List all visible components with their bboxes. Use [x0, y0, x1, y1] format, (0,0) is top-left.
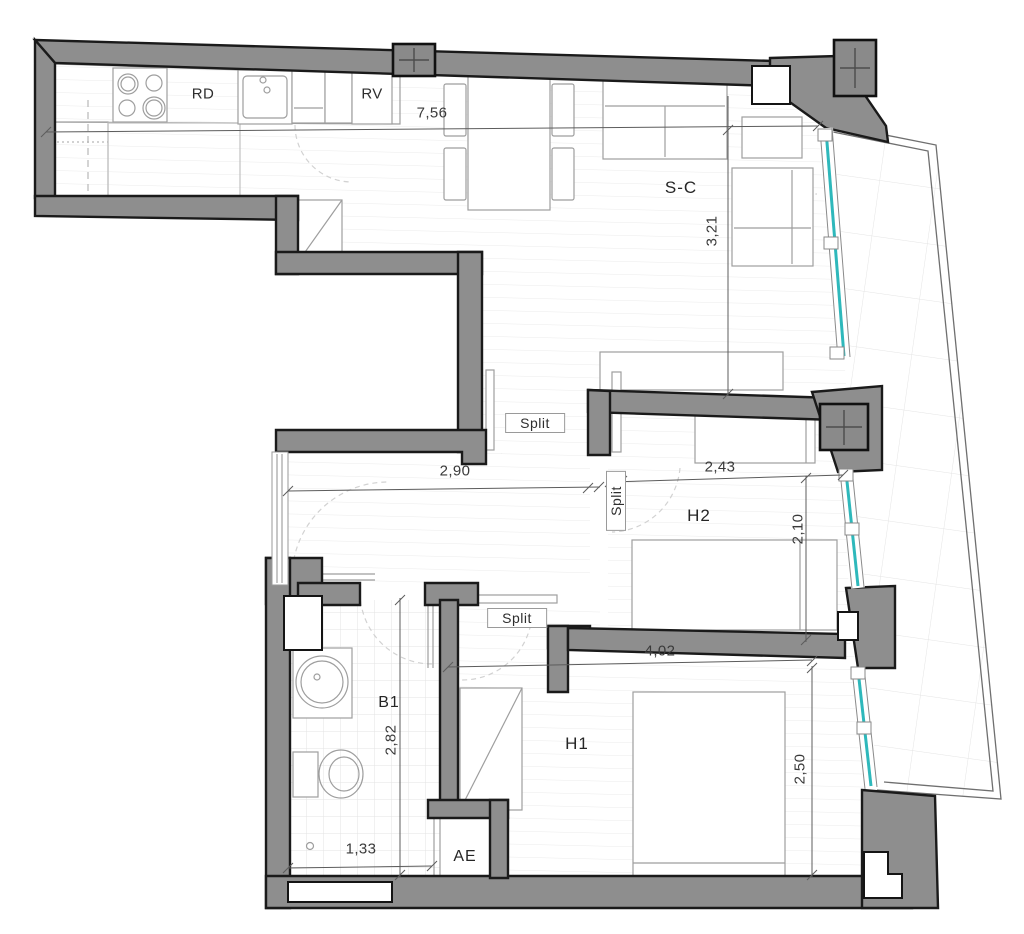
ac-unit-h1 [473, 595, 557, 603]
wall-kitchen-bottom [35, 196, 298, 220]
dishwasher [292, 66, 325, 123]
chair [444, 148, 466, 200]
room-label-storage: AE [453, 848, 476, 866]
dim-living-width: 7,56 [417, 105, 448, 122]
ac-label-hall: Split [505, 413, 565, 433]
dim-wardrobe-width: 2,43 [705, 459, 736, 476]
chair [552, 148, 574, 200]
room-label-living: S-C [665, 178, 697, 198]
room-label-bedroom1: H1 [565, 734, 589, 754]
kitchen-counter-label: RD [192, 86, 214, 103]
room-label-bathroom: B1 [378, 694, 400, 712]
left-niche [284, 596, 322, 650]
ac-label-bedroom1: Split [487, 608, 547, 628]
floor-plan: RD RV 7,56 S-C 3,21 Split Split 2,90 2,4… [0, 0, 1024, 934]
wall-left-kitchen [35, 40, 55, 198]
wall-patio-right [458, 252, 482, 452]
dim-bathroom-width: 1,33 [346, 841, 377, 858]
dim-bedroom2-depth: 2,10 [790, 514, 807, 545]
side-table [742, 117, 802, 158]
ac-label-bedroom2: Split [606, 471, 626, 531]
bottom-vent [288, 882, 392, 902]
fridge-label: RV [361, 86, 382, 103]
dim-bedroom1-width: 4,02 [645, 643, 676, 660]
hall-window [272, 452, 288, 585]
armchair [732, 168, 813, 266]
kitchen-unit [325, 65, 352, 123]
entry-niche [752, 66, 790, 104]
dim-bedroom1-depth: 2,50 [792, 754, 809, 785]
tv-bench [600, 352, 783, 390]
wall-patio-top [276, 252, 482, 274]
dim-living-depth: 3,21 [704, 216, 721, 247]
room-label-bedroom2: H2 [687, 506, 711, 526]
toilet-tank [293, 752, 318, 797]
dining-table [468, 70, 550, 210]
wall-bath-h1 [440, 600, 458, 815]
wall-storage-right [490, 800, 508, 878]
bed-h1 [633, 692, 785, 897]
dim-hall-width: 2,90 [440, 463, 471, 480]
dim-bathroom-depth: 2,82 [383, 725, 400, 756]
pier-notch [838, 612, 858, 640]
floor-plan-drawing [0, 0, 1024, 934]
